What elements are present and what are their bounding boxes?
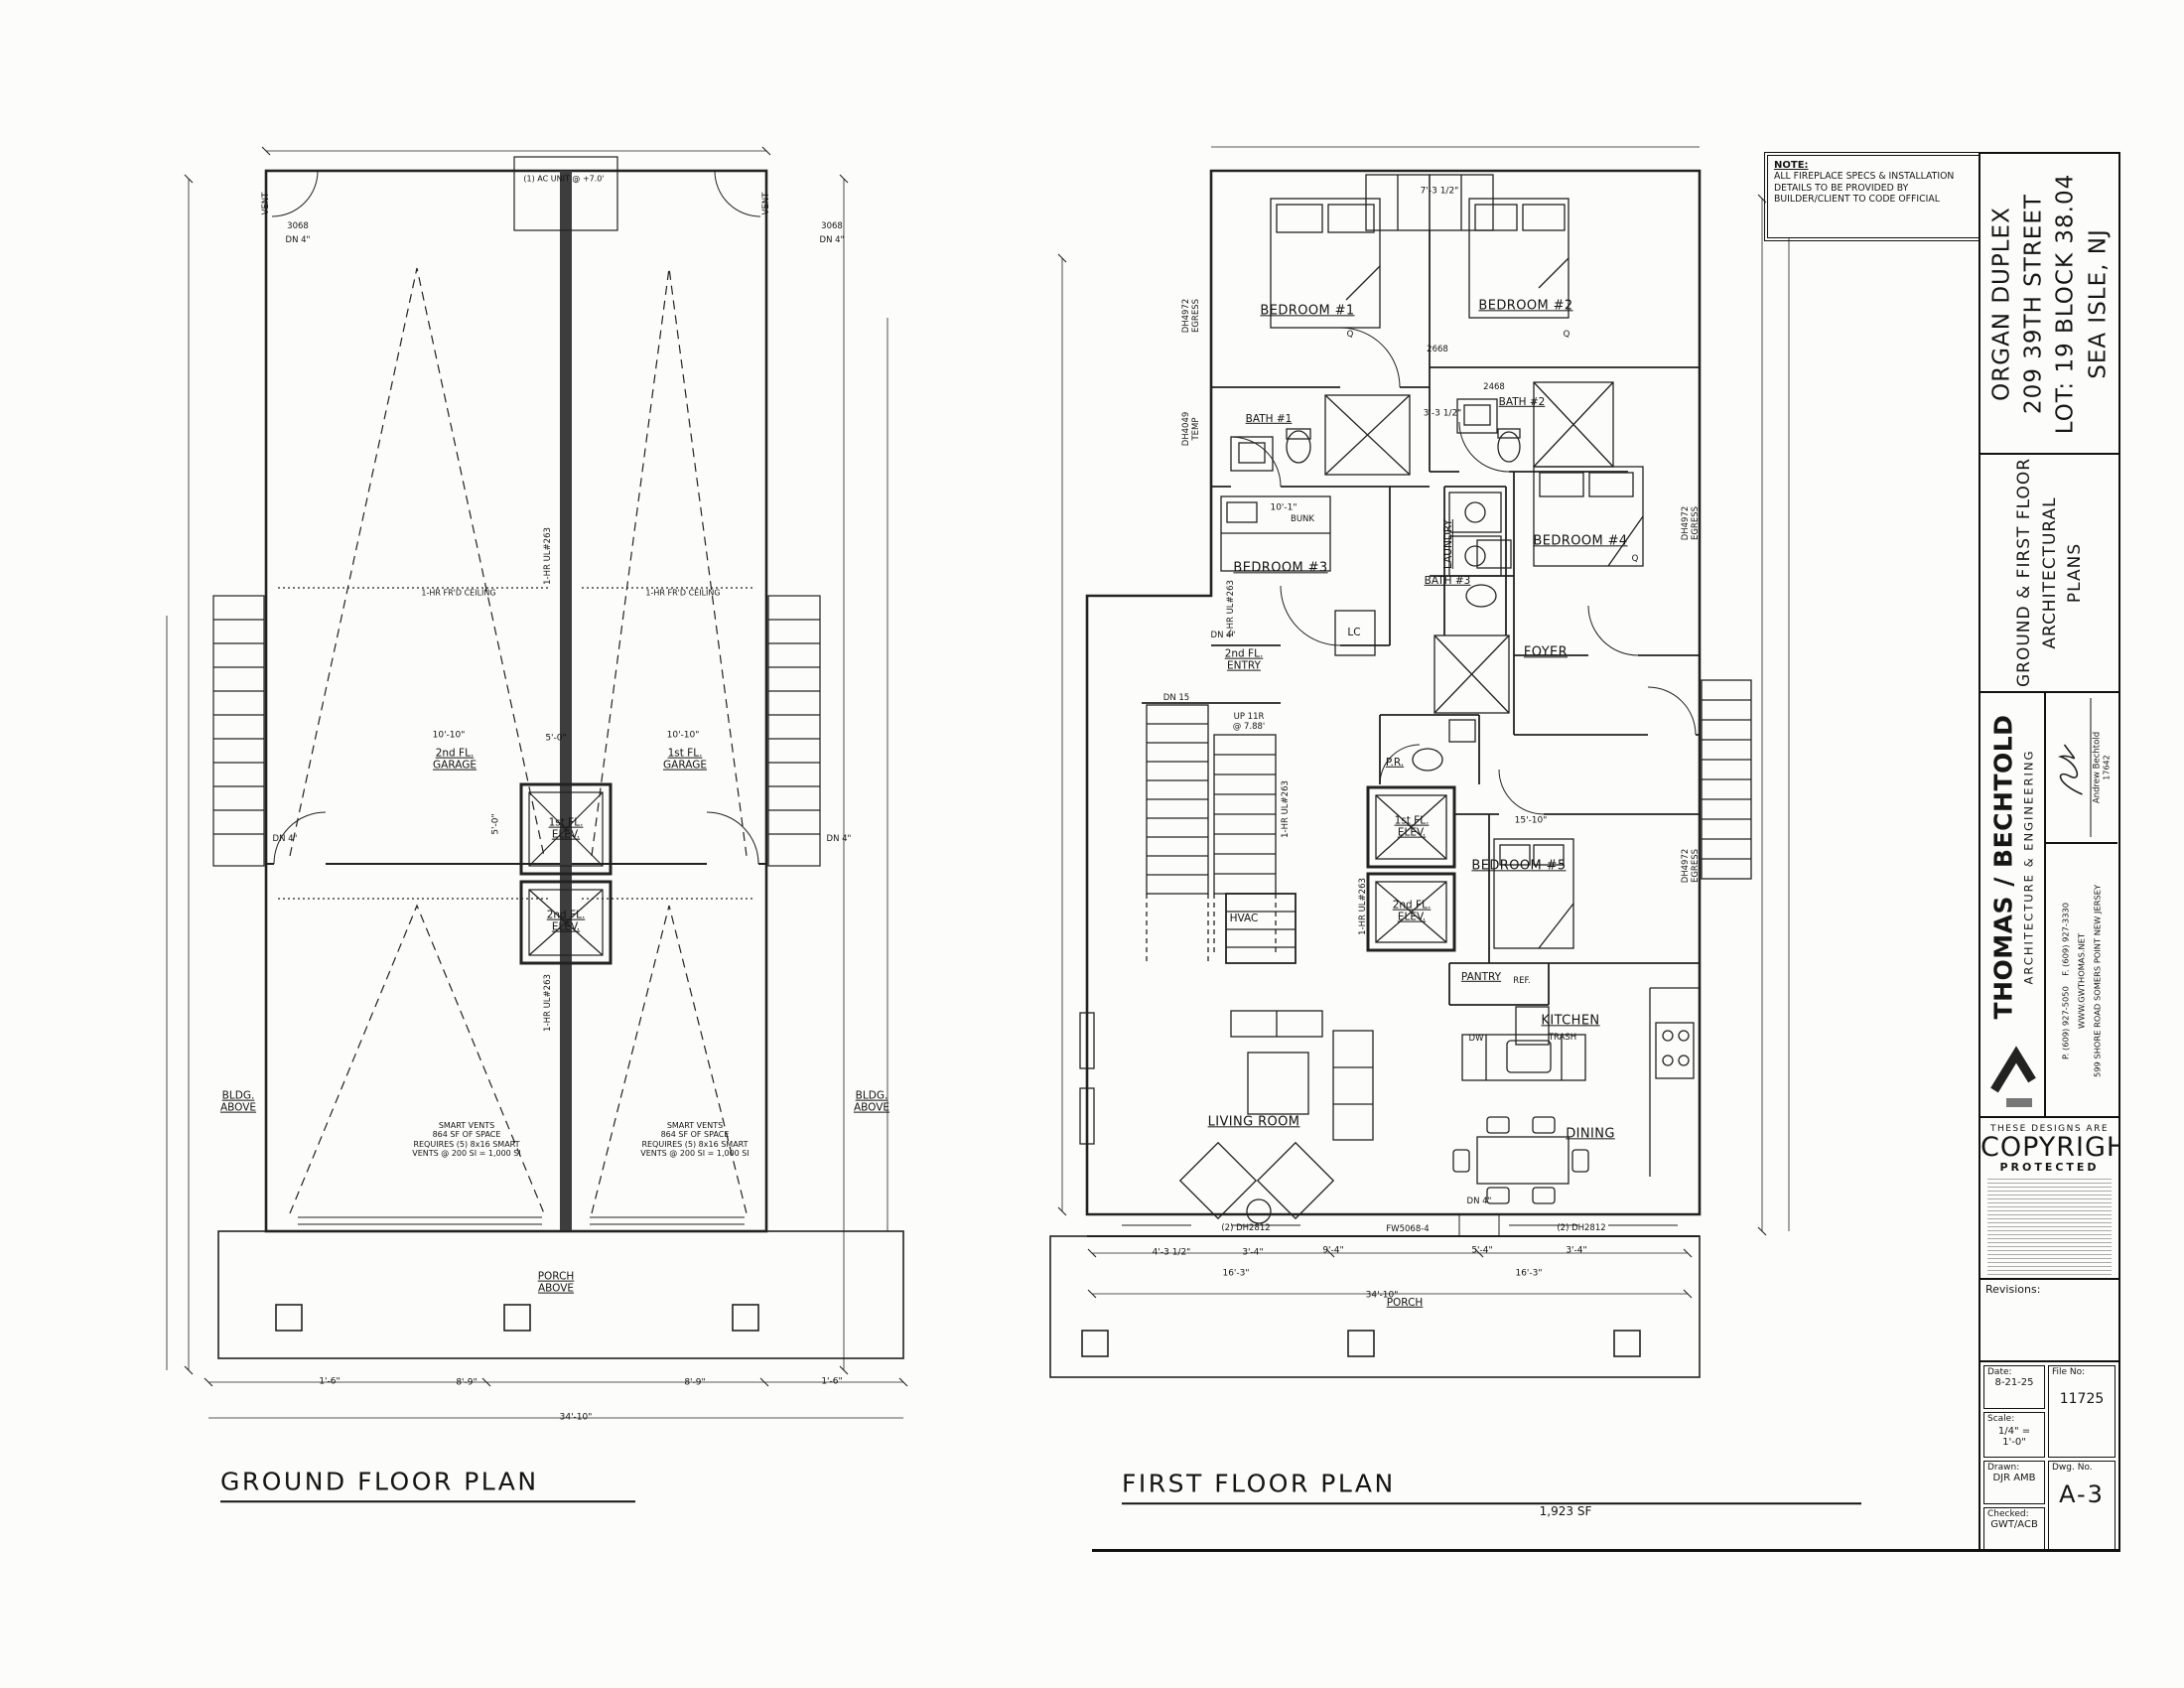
firm-section: THOMAS / BECHTOLD ARCHITECTURE & ENGINEE… <box>1980 693 2118 1118</box>
file-no-label: File No: <box>2052 1367 2112 1377</box>
first-floor-plan-title: FIRST FLOOR PLAN <box>1122 1469 1861 1504</box>
firm-name: THOMAS / BECHTOLD <box>1988 698 2017 1036</box>
drawn-label: Drawn: <box>1987 1463 2041 1473</box>
ff-bath-fixtures <box>1231 382 1613 771</box>
architect-signature-block: Andrew Bechtold 17642 <box>2044 693 2117 844</box>
revisions-label: Revisions: <box>1980 1280 2118 1299</box>
copyright-fine-print <box>1987 1179 2112 1280</box>
firm-contact-block: P. (609) 927-5050 F. (609) 927-3330 WWW.… <box>2044 844 2117 1118</box>
date-label: Date: <box>1987 1367 2041 1377</box>
admin-section: Date: 8-21-25 File No: 11725 Scale: 1/4"… <box>1980 1362 2118 1541</box>
title-block: ORGAN DUPLEX 209 39TH STREET LOT: 19 BLO… <box>1979 152 2120 1551</box>
date-value: 8-21-25 <box>1987 1377 2041 1388</box>
ff-elevator-shafts <box>1368 787 1454 950</box>
sheet-bottom-border <box>1092 1549 2120 1552</box>
note-line: DETAILS TO BE PROVIDED BY <box>1774 183 1979 195</box>
gf-walls <box>266 157 766 1231</box>
firm-phone: P. (609) 927-5050 <box>2060 986 2070 1059</box>
dwg-no-value: A-3 <box>2052 1480 2112 1508</box>
sheet-title-section: GROUND & FIRST FLOOR ARCHITECTURAL PLANS <box>1980 455 2118 693</box>
scale-label: Scale: <box>1987 1414 2041 1424</box>
scale-cell: Scale: 1/4" = 1'-0" <box>1983 1412 2045 1458</box>
scale-value: 1/4" = 1'-0" <box>1987 1426 2041 1448</box>
file-no-cell: File No: 11725 <box>2048 1365 2116 1458</box>
fireplace-note-box: NOTE: ALL FIREPLACE SPECS & INSTALLATION… <box>1767 155 1985 238</box>
dwg-no-label: Dwg. No. <box>2052 1463 2112 1473</box>
note-title: NOTE: <box>1774 160 1979 171</box>
ff-beds <box>1221 199 1643 948</box>
gf-ceiling-lines <box>278 588 754 899</box>
first-floor-plan-drawing <box>1032 139 1827 1460</box>
ff-dimension-lines <box>1058 147 1789 1298</box>
project-city: SEA ISLE, NJ <box>2082 160 2114 448</box>
signer-license: 17642 <box>2103 698 2112 837</box>
ff-living-furniture <box>1180 1011 1373 1223</box>
firm-fax: F. (609) 927-3330 <box>2060 903 2070 976</box>
copyright-section: THESE DESIGNS ARE COPYRIGHT PROTECTED <box>1980 1118 2118 1280</box>
copyright-post: PROTECTED <box>1980 1161 2118 1174</box>
ff-hvac <box>1226 894 1296 963</box>
ff-porch <box>1050 1236 1700 1377</box>
sheet-title-line: PLANS <box>2062 459 2088 687</box>
sheet-title-line: GROUND & FIRST FLOOR <box>2011 459 2037 687</box>
firm-website: WWW.GWTHOMAS.NET <box>2074 848 2090 1114</box>
signer-name: Andrew Bechtold <box>2091 698 2103 837</box>
project-address: 209 39TH STREET <box>2017 160 2049 448</box>
firm-tagline: ARCHITECTURE & ENGINEERING <box>2021 698 2035 1036</box>
signature-icon <box>2053 733 2087 802</box>
ground-floor-plan-drawing <box>149 139 973 1489</box>
sheet-title-line: ARCHITECTURAL <box>2037 459 2063 687</box>
drawn-value: DJR AMB <box>1987 1473 2041 1483</box>
drawn-cell: Drawn: DJR AMB <box>1983 1461 2045 1504</box>
project-lot-block: LOT: 19 BLOCK 38.04 <box>2050 160 2082 448</box>
ff-kitchen <box>1462 988 1700 1177</box>
firm-logo <box>1984 1043 2040 1114</box>
firm-address: 599 SHORE ROAD SOMERS POINT NEW JERSEY <box>2090 848 2106 1114</box>
ff-walls <box>1080 171 1700 1236</box>
note-line: BUILDER/CLIENT TO CODE OFFICIAL <box>1774 194 1979 206</box>
checked-label: Checked: <box>1987 1509 2041 1519</box>
ff-dining-furniture <box>1453 1117 1588 1203</box>
date-cell: Date: 8-21-25 <box>1983 1365 2045 1409</box>
project-title-section: ORGAN DUPLEX 209 39TH STREET LOT: 19 BLO… <box>1980 154 2118 455</box>
drawing-sheet: 2nd FL. GARAGE1st FL. GARAGE1st FL. ELEV… <box>0 0 2184 1688</box>
project-name: ORGAN DUPLEX <box>1985 160 2017 448</box>
dwg-no-cell: Dwg. No. A-3 <box>2048 1461 2116 1550</box>
gf-porch <box>218 1231 903 1358</box>
checked-cell: Checked: GWT/ACB <box>1983 1507 2045 1550</box>
copyright-word: COPYRIGHT <box>1980 1134 2118 1161</box>
file-no-value: 11725 <box>2052 1391 2112 1407</box>
gf-garage-brace-lines <box>290 268 747 1213</box>
note-line: ALL FIREPLACE SPECS & INSTALLATION <box>1774 171 1979 183</box>
revisions-section: Revisions: <box>1980 1280 2118 1362</box>
first-floor-area-label: 1,923 SF <box>1540 1504 1592 1518</box>
checked-value: GWT/ACB <box>1987 1519 2041 1530</box>
gf-dimension-lines <box>167 147 907 1418</box>
